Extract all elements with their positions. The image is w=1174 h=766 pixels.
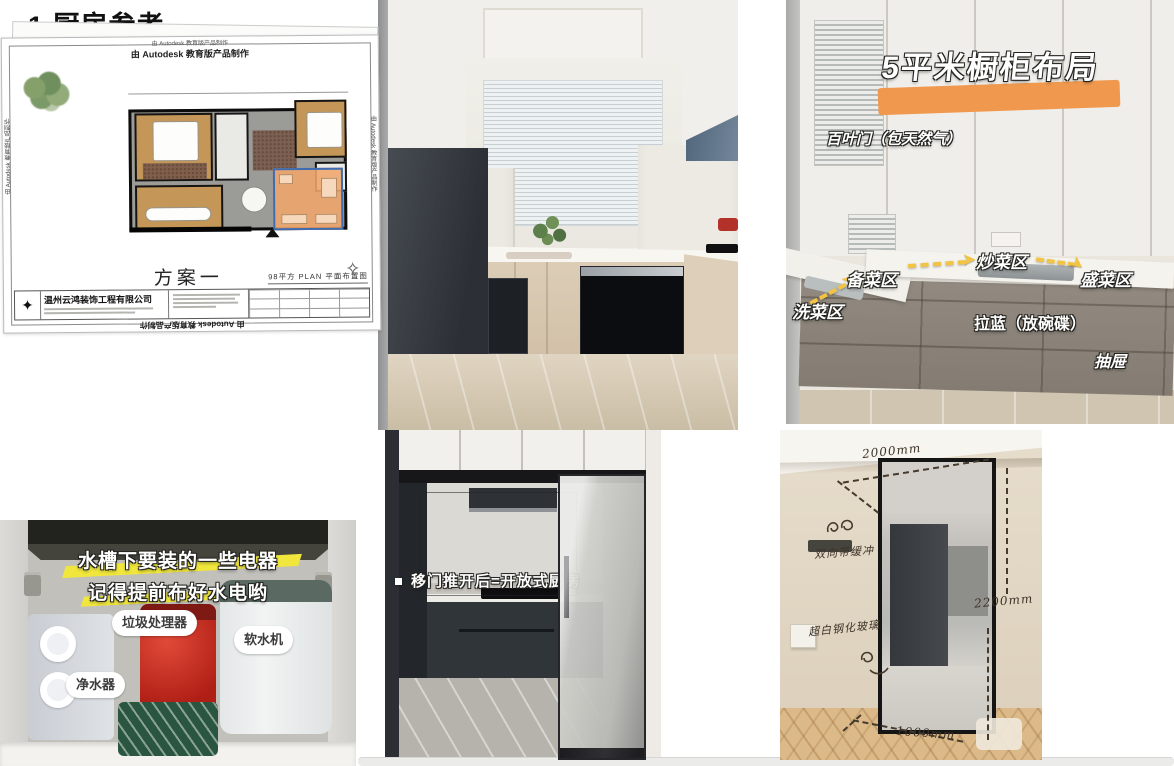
frosted-glass-door <box>558 474 646 760</box>
label-stirfry-zone: 炒菜区 <box>976 248 1027 273</box>
kitchen-cabinets-through-glass <box>890 524 948 674</box>
flow-arrow-head: ➤ <box>962 250 976 270</box>
sink <box>506 252 572 259</box>
dimension-line <box>128 92 348 95</box>
door-bottom-rail <box>560 748 644 758</box>
undersink-caption-line1: 水槽下要装的一些电器 <box>0 546 356 573</box>
bedroom-room <box>134 113 213 182</box>
label-plating-zone: 盛菜区 <box>1080 266 1131 291</box>
dining-table <box>241 186 267 212</box>
floor-plan-image[interactable]: 由 Autodesk 教育版产品制作 由 Autodesk 教育版产品制作 由 … <box>0 36 386 332</box>
floor-plan-sheet: 由 Autodesk 教育版产品制作 由 Autodesk 教育版产品制作 由 … <box>1 34 382 333</box>
autodesk-watermark-right: 由 Autodesk 教育版产品制作 <box>368 115 378 191</box>
kitchen-floor <box>800 390 1174 424</box>
doodle-squiggle <box>856 648 892 678</box>
range-hood <box>686 115 738 161</box>
door-frame-edge <box>786 0 800 424</box>
document-page: 1.厨房参考 由 Autodesk 教育版产品制作 由 Autodesk 教育版… <box>0 0 1174 766</box>
label-softener: 软水机 <box>234 626 293 654</box>
autodesk-watermark-left: 由 Autodesk 教育版产品制作 <box>3 119 13 195</box>
salt-bag <box>118 702 218 756</box>
undersink-photo[interactable]: 水槽下要装的一些电器 记得提前布好水电哟 垃圾处理器 净水器 软水机 <box>0 520 356 766</box>
upper-cabinets <box>399 430 647 474</box>
label-pullout-basket: 拉蓝（放碗碟） <box>974 310 1086 334</box>
kitchen-highlight-overlay <box>273 168 344 231</box>
label-washing-zone: 洗菜区 <box>792 298 843 323</box>
title-block-notes <box>169 289 249 318</box>
plant <box>526 210 574 252</box>
sliding-door-photo[interactable]: 移门推开后=开放式厨房 <box>385 430 661 760</box>
kitchen-photo-u-shape[interactable] <box>388 0 738 430</box>
door-spec-photo[interactable]: 2000mm 双向带缓冲 2200mm 超白钢化玻璃 1000mm <box>780 430 1042 760</box>
measure-line-top-left <box>837 480 879 514</box>
company-logo-icon: ✦ <box>15 291 41 319</box>
louver-vent-panel-small <box>848 214 896 254</box>
title-block-grid <box>249 288 369 317</box>
measure-line-right-lower <box>987 628 989 740</box>
undersink-caption-line2: 记得提前布好水电哟 <box>0 578 356 605</box>
note-buffer: 双向带缓冲 <box>814 542 875 562</box>
wall-segment <box>129 226 251 232</box>
sliding-door-caption: 移门推开后=开放式厨房 <box>411 570 581 591</box>
floor-plan-drawing <box>122 88 355 248</box>
left-door-jamb <box>385 430 399 760</box>
floor-object <box>976 718 1022 750</box>
bedroom-room-2 <box>294 100 347 158</box>
title-block: ✦ 温州云鸿装饰工程有限公司 <box>14 287 370 320</box>
cabinet-layout-photo[interactable]: 5平米橱柜布局 百叶门（包天然气） ➤ ➤ ➤ 备菜区 炒菜区 盛菜区 洗菜区 … <box>786 0 1174 424</box>
kitchen-floor-through-glass <box>882 666 992 730</box>
caption-bullet <box>395 578 402 585</box>
door-handle <box>564 556 569 618</box>
company-name-cell: 温州云鸿装饰工程有限公司 <box>41 290 169 319</box>
bedroom-room-3 <box>135 185 223 232</box>
plan-name-label: 方案一 <box>154 263 223 291</box>
label-purifier: 净水器 <box>66 672 125 698</box>
note-glass: 超白钢化玻璃 <box>807 616 880 639</box>
red-pot <box>718 218 738 231</box>
dishwasher <box>580 266 684 356</box>
label-drawer: 抽屉 <box>1094 348 1126 372</box>
doodle-squiggle <box>824 514 858 542</box>
label-prep-zone: 备菜区 <box>846 266 897 291</box>
door-marker <box>265 228 279 237</box>
sheet-info-label: 98平方 PLAN 平面布置图 <box>268 270 368 284</box>
page-divider <box>358 757 1174 766</box>
marble-floor <box>388 354 738 430</box>
entry-rug <box>253 130 297 170</box>
built-in-oven <box>488 278 528 354</box>
tree-icon <box>17 70 75 115</box>
cooktop <box>706 244 738 253</box>
layout-title: 5平米橱柜布局 <box>880 42 1102 87</box>
right-wall <box>646 430 661 760</box>
wall-socket <box>991 232 1021 247</box>
company-name: 温州云鸿装饰工程有限公司 <box>44 292 165 306</box>
label-louver-door: 百叶门（包天然气） <box>826 128 961 149</box>
counter-underside <box>0 520 356 544</box>
bathroom-room <box>214 112 249 180</box>
label-disposal: 垃圾处理器 <box>112 610 197 636</box>
measure-line-right-upper <box>1006 468 1008 594</box>
